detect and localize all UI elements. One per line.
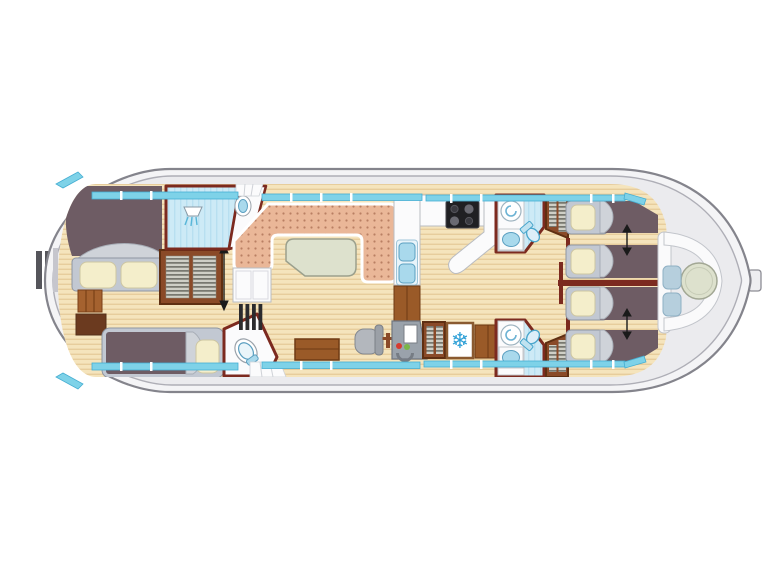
pillow	[80, 262, 116, 288]
refrigerator: ❄	[447, 323, 473, 358]
shelved-cabinet	[423, 322, 445, 358]
pillow	[571, 334, 595, 359]
sink-basin	[399, 243, 415, 261]
green-indicator	[404, 344, 410, 350]
fore-berth-3	[566, 287, 658, 320]
cabin-interior: ❄	[58, 184, 670, 378]
boat-floor-plan-diagram: ❄	[0, 0, 768, 576]
aft-steps	[78, 290, 102, 312]
stove-four-burner	[446, 201, 479, 228]
aft-sideboard	[76, 314, 106, 335]
snowflake-icon: ❄	[451, 329, 469, 354]
pillow	[571, 249, 595, 274]
pillow	[121, 262, 157, 288]
stern-step	[53, 248, 58, 292]
boat-floor-plan-page: ❄	[0, 0, 768, 576]
shower-tray	[501, 325, 521, 345]
sink-basin	[399, 264, 415, 283]
console-screen	[404, 325, 417, 343]
aft-wardrobe	[160, 250, 222, 304]
stern-rail-icon	[36, 251, 42, 289]
helm-station: ❄	[355, 321, 501, 361]
washbasin	[503, 233, 520, 247]
stern-window-accent	[56, 373, 83, 389]
shower-tray	[501, 201, 521, 221]
stern-window-accent	[56, 172, 83, 188]
helm-seat-back	[375, 325, 383, 355]
seat-cushion	[663, 266, 681, 289]
top-entry-steps	[236, 184, 263, 196]
red-indicator	[396, 343, 402, 349]
steering-pedestal	[386, 333, 390, 348]
pillow	[571, 205, 595, 230]
aft-double-bed	[66, 186, 164, 291]
sideboard	[233, 268, 271, 302]
fore-berth-2	[566, 245, 658, 278]
seat-cushion	[663, 293, 681, 316]
pillow	[571, 291, 595, 316]
bow-table	[681, 263, 717, 299]
